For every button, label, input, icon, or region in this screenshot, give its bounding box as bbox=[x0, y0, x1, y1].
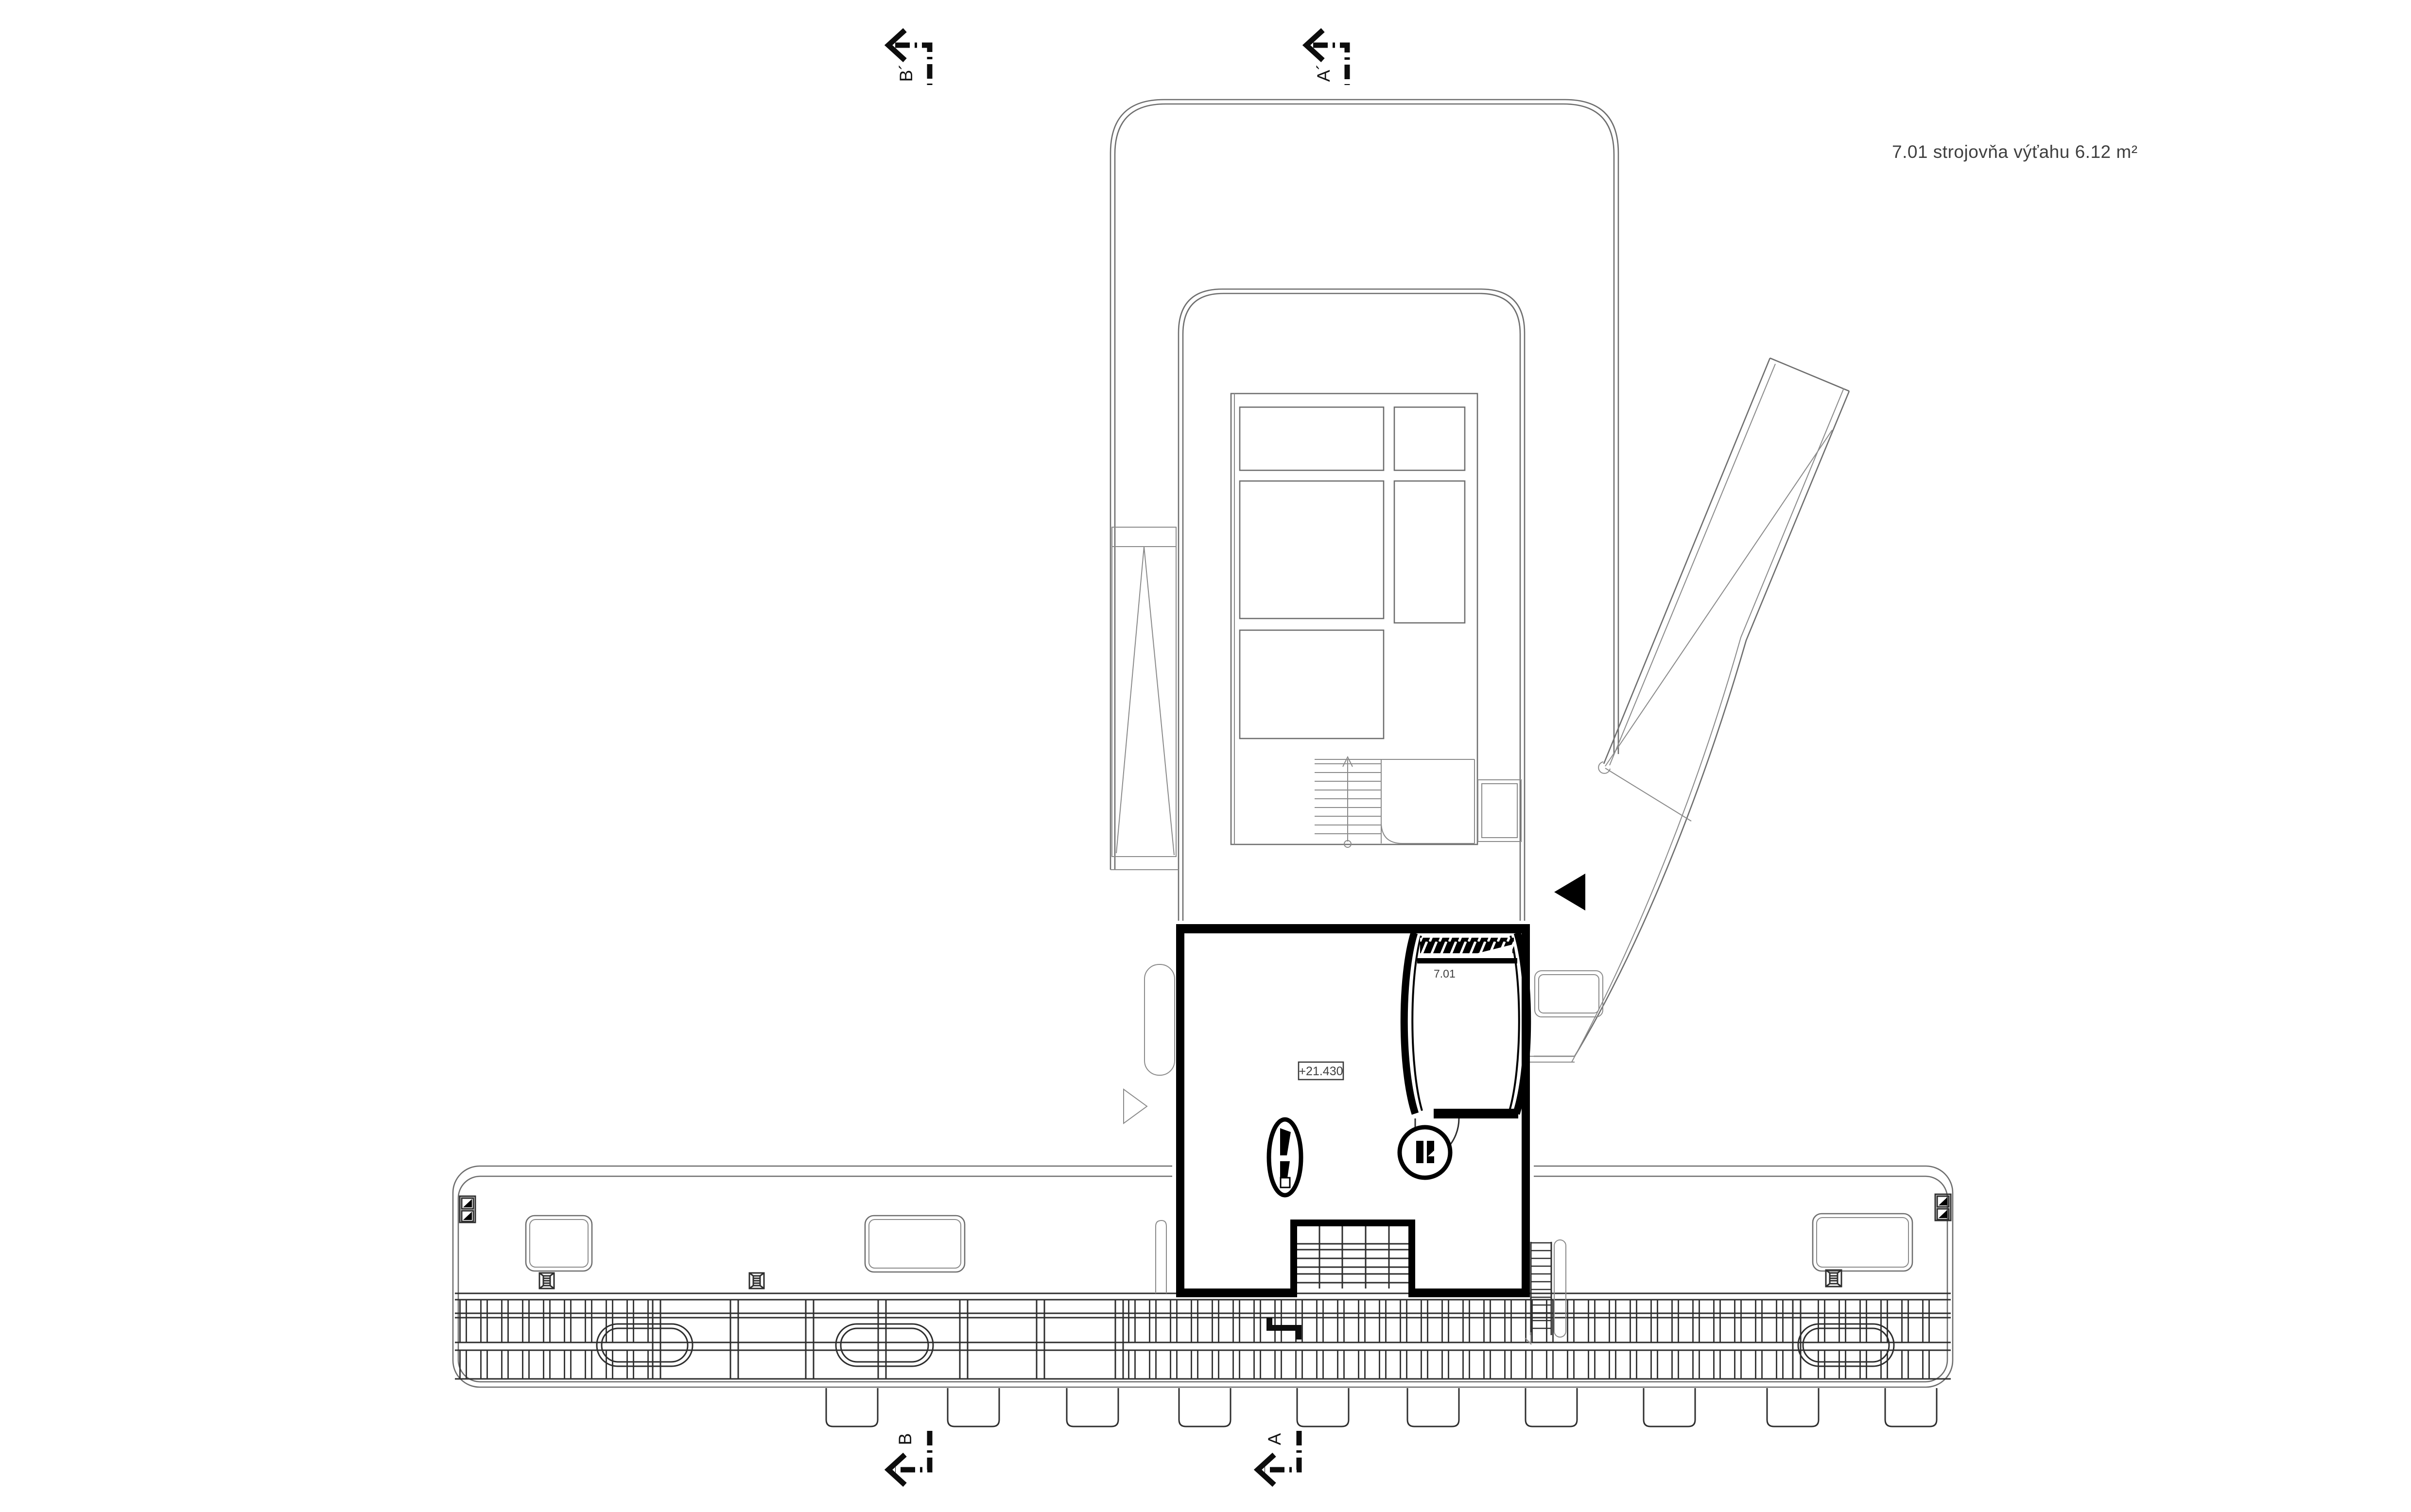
canopy-stadium bbox=[1145, 964, 1175, 1075]
slat-row bbox=[459, 1350, 653, 1379]
section-marker-a: A bbox=[1258, 1431, 1299, 1485]
floor-plan-canvas: 7.01 +21.430 bbox=[0, 0, 2411, 1512]
ramp-crease bbox=[1605, 768, 1691, 821]
section-letter: A bbox=[1265, 1433, 1284, 1445]
room-number-label: 7.01 bbox=[1434, 967, 1456, 980]
skylight-grid bbox=[1231, 394, 1477, 844]
elevation-label: +21.430 bbox=[1299, 1062, 1343, 1080]
section-marker-a-prime: A´ bbox=[1306, 30, 1347, 85]
section-letter: A´ bbox=[1314, 64, 1334, 82]
roof-room bbox=[1478, 780, 1521, 842]
slat-row bbox=[1123, 1300, 1793, 1342]
ramp bbox=[1530, 358, 1849, 1062]
staircase bbox=[1315, 757, 1474, 847]
tower-building bbox=[1110, 100, 1618, 927]
ramp-crease bbox=[1605, 430, 1832, 766]
slat-row bbox=[1123, 1350, 1793, 1379]
machine-room: 7.01 +21.430 bbox=[1145, 921, 1603, 1344]
section-marker-b-prime: B´ bbox=[888, 30, 930, 85]
fan-round-icon bbox=[1400, 1127, 1450, 1178]
exterior-landing bbox=[1530, 971, 1603, 1062]
slat-row bbox=[459, 1300, 653, 1342]
stair-landing bbox=[1381, 759, 1474, 843]
solid-arrow-icon bbox=[1554, 874, 1585, 911]
parapet-strip bbox=[1156, 1220, 1166, 1293]
grating-strip bbox=[455, 1293, 1951, 1379]
tower-outer-wall bbox=[1110, 100, 1618, 870]
hollow-arrow-icon bbox=[1124, 1089, 1147, 1123]
slat-row bbox=[1818, 1300, 1942, 1342]
section-letter: B´ bbox=[896, 64, 916, 82]
fan-oval-icon bbox=[1269, 1119, 1301, 1195]
support-columns bbox=[826, 1388, 1937, 1426]
section-letter: B bbox=[895, 1433, 915, 1445]
room-legend: 7.01 strojovňa výťahu 6.12 m² bbox=[1892, 142, 2138, 162]
canopy-wedge bbox=[1110, 527, 1179, 870]
section-marker-b: B bbox=[888, 1431, 930, 1485]
svg-text:+21.430: +21.430 bbox=[1299, 1065, 1343, 1078]
